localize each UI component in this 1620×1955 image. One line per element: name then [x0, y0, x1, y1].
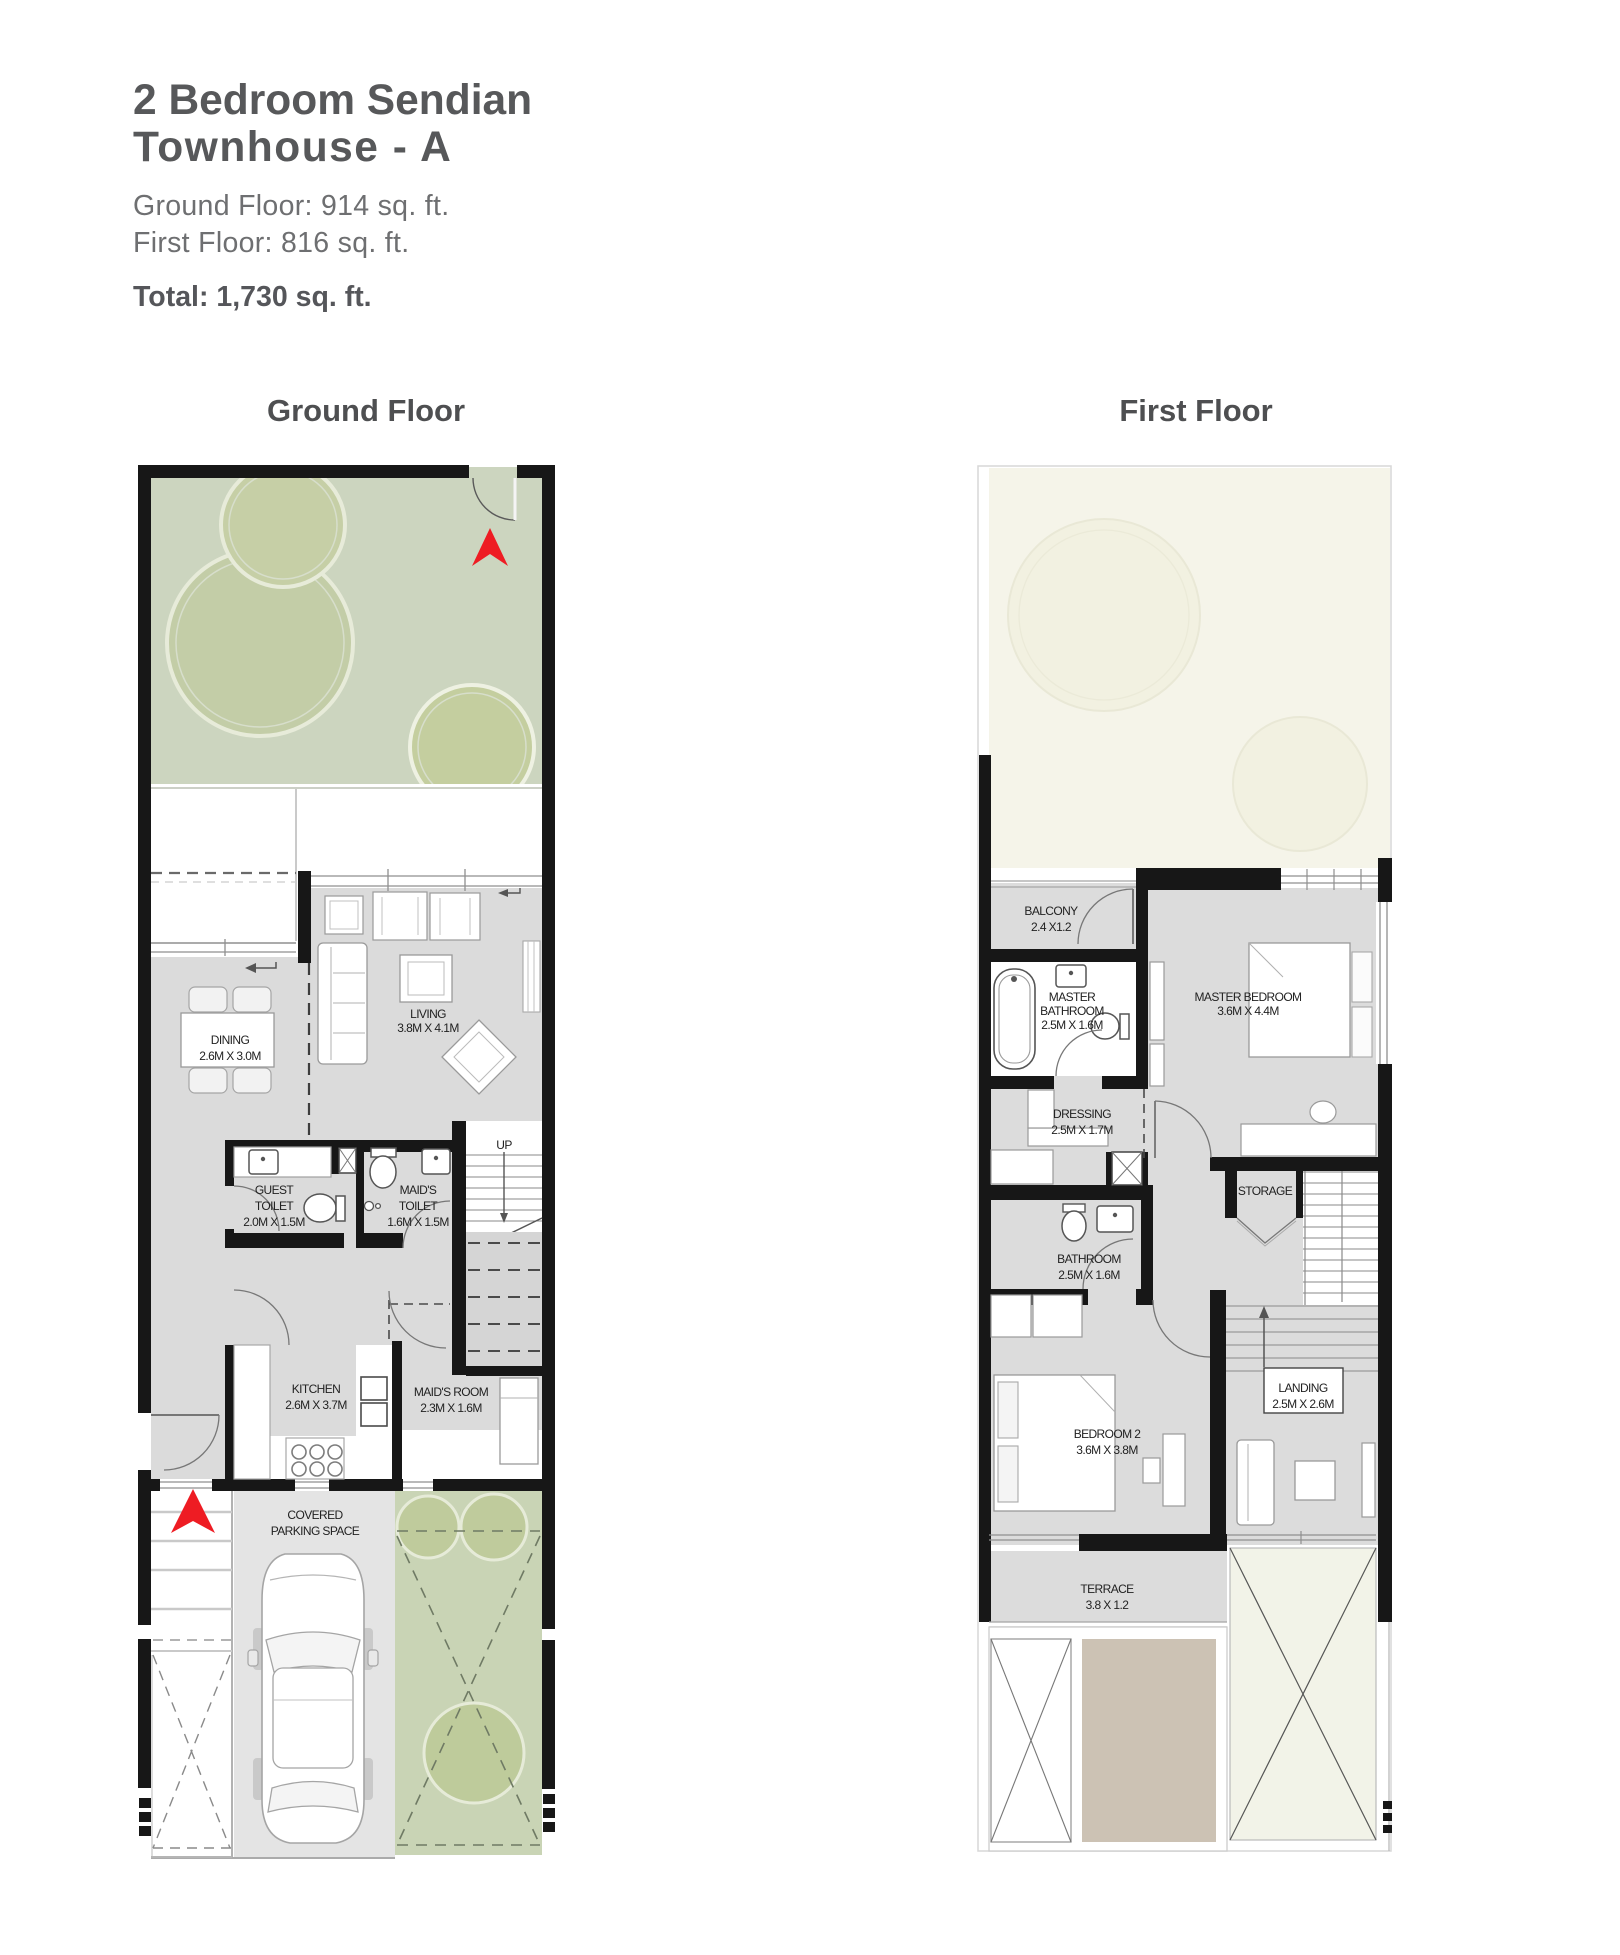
svg-text:2.0M X 1.5M: 2.0M X 1.5M	[243, 1215, 305, 1229]
svg-text:MASTER: MASTER	[1049, 990, 1096, 1004]
svg-text:First Floor: 816 sq. ft.: First Floor: 816 sq. ft.	[133, 227, 409, 259]
svg-text:1.6M X 1.5M: 1.6M X 1.5M	[387, 1215, 449, 1229]
svg-text:2.5M X 1.7M: 2.5M X 1.7M	[1051, 1123, 1113, 1137]
svg-text:2.5M X 2.6M: 2.5M X 2.6M	[1272, 1397, 1334, 1411]
svg-text:BALCONY: BALCONY	[1024, 904, 1078, 918]
svg-text:3.6M X 4.4M: 3.6M X 4.4M	[1217, 1004, 1279, 1018]
svg-text:Townhouse - A: Townhouse - A	[133, 124, 452, 171]
svg-text:3.8 X 1.2: 3.8 X 1.2	[1086, 1598, 1130, 1612]
svg-text:MAID'S ROOM: MAID'S ROOM	[414, 1385, 489, 1399]
svg-text:TOILET: TOILET	[399, 1199, 438, 1213]
svg-text:2.6M X 3.7M: 2.6M X 3.7M	[285, 1398, 347, 1412]
svg-text:Ground Floor: 914 sq. ft.: Ground Floor: 914 sq. ft.	[133, 190, 449, 222]
svg-text:TOILET: TOILET	[255, 1199, 294, 1213]
svg-text:KITCHEN: KITCHEN	[292, 1382, 340, 1396]
svg-text:MAID'S: MAID'S	[400, 1183, 437, 1197]
svg-text:DRESSING: DRESSING	[1053, 1107, 1111, 1121]
svg-text:Total: 1,730 sq. ft.: Total: 1,730 sq. ft.	[133, 281, 372, 313]
svg-text:GUEST: GUEST	[255, 1183, 295, 1197]
svg-text:3.6M X 3.8M: 3.6M X 3.8M	[1076, 1443, 1138, 1457]
svg-text:BEDROOM 2: BEDROOM 2	[1074, 1427, 1142, 1441]
svg-text:TERRACE: TERRACE	[1080, 1582, 1134, 1596]
svg-text:COVERED: COVERED	[287, 1508, 343, 1522]
svg-text:PARKING SPACE: PARKING SPACE	[271, 1524, 360, 1538]
svg-text:3.8M X 4.1M: 3.8M X 4.1M	[397, 1021, 459, 1035]
svg-text:2.4 X1.2: 2.4 X1.2	[1031, 920, 1072, 934]
svg-text:MASTER BEDROOM: MASTER BEDROOM	[1195, 990, 1303, 1004]
svg-text:2.3M X 1.6M: 2.3M X 1.6M	[420, 1401, 482, 1415]
svg-text:LIVING: LIVING	[410, 1007, 446, 1021]
svg-text:BATHROOM: BATHROOM	[1057, 1252, 1121, 1266]
svg-text:BATHROOM: BATHROOM	[1040, 1004, 1104, 1018]
svg-text:DINING: DINING	[211, 1033, 250, 1047]
svg-text:STORAGE: STORAGE	[1238, 1184, 1293, 1198]
svg-text:First Floor: First Floor	[1119, 393, 1272, 428]
svg-text:UP: UP	[496, 1138, 512, 1152]
svg-text:2.5M X 1.6M: 2.5M X 1.6M	[1041, 1018, 1103, 1032]
svg-text:Ground Floor: Ground Floor	[267, 393, 465, 428]
svg-text:2.6M X 3.0M: 2.6M X 3.0M	[199, 1049, 261, 1063]
svg-text:2 Bedroom Sendian: 2 Bedroom Sendian	[133, 77, 532, 124]
svg-text:2.5M X 1.6M: 2.5M X 1.6M	[1058, 1268, 1120, 1282]
svg-text:LANDING: LANDING	[1278, 1381, 1327, 1395]
